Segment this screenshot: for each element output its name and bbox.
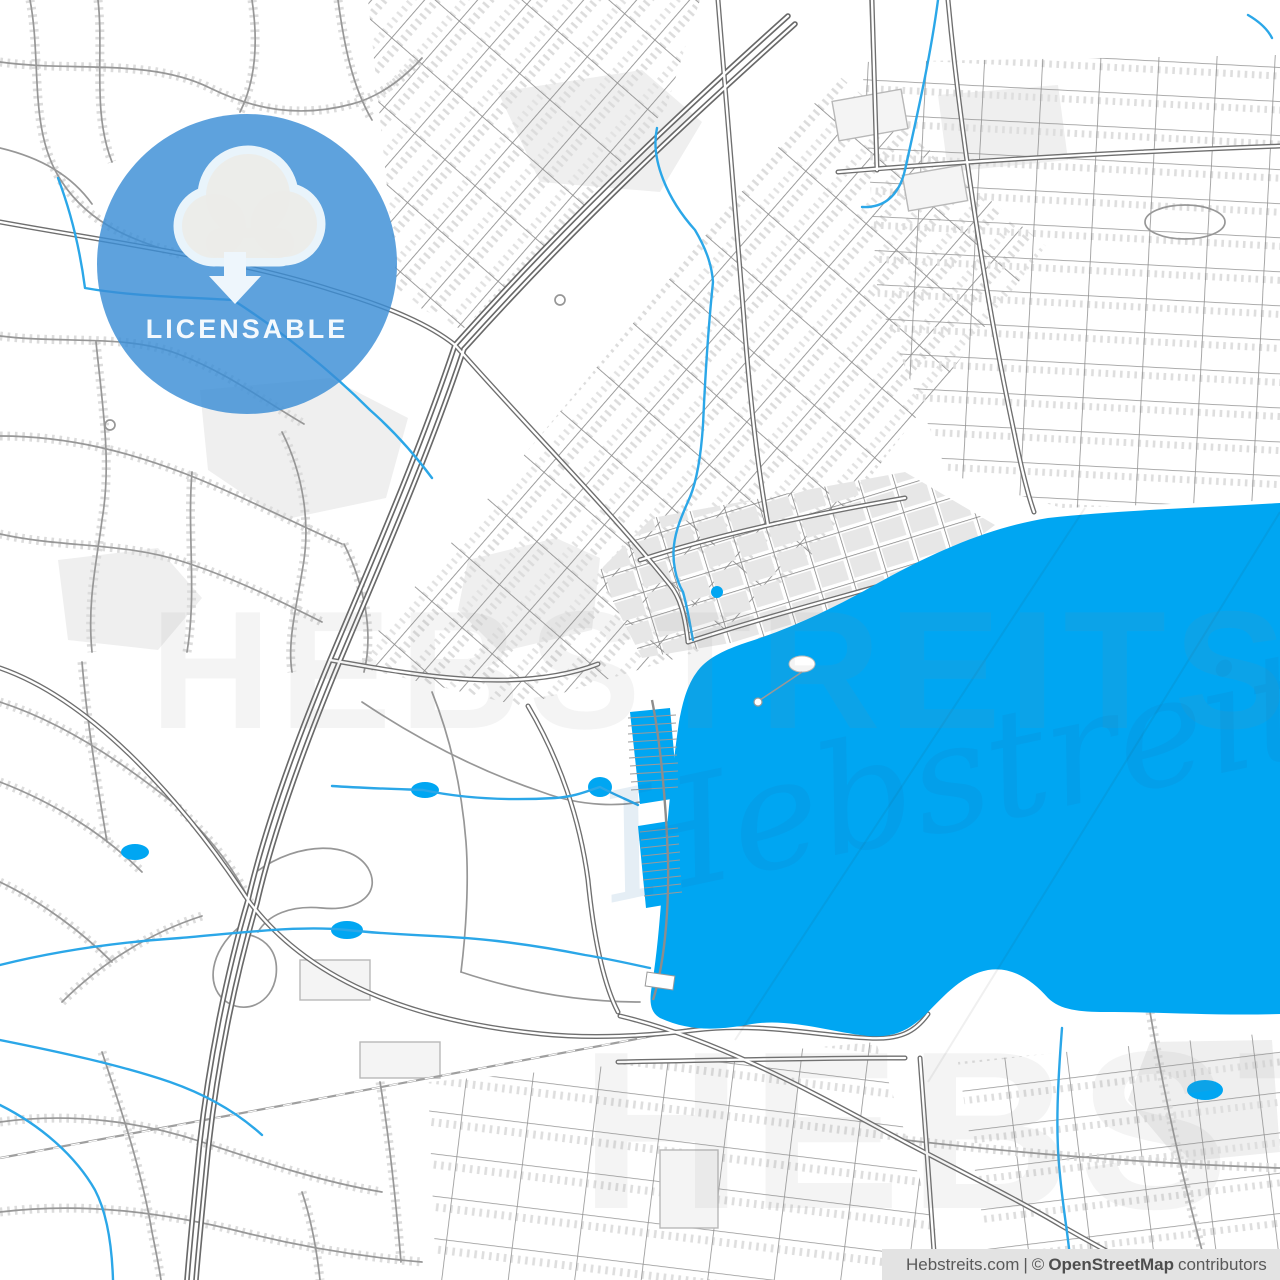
badge-label: LICENSABLE xyxy=(146,314,349,344)
watermark-text-bottom: HEBSTREITS xyxy=(580,1004,1280,1256)
map-poster-preview: HEBSTREITS HEBSTREITS Hebstreits LICENSA… xyxy=(0,0,1280,1280)
attribution-suffix: contributors xyxy=(1178,1255,1267,1274)
attribution-provider[interactable]: OpenStreetMap xyxy=(1048,1255,1174,1274)
city-map: HEBSTREITS HEBSTREITS Hebstreits LICENSA… xyxy=(0,0,1280,1280)
attribution-divider: | xyxy=(1023,1255,1027,1274)
copyright-symbol: © xyxy=(1032,1255,1045,1274)
licensable-badge[interactable]: LICENSABLE xyxy=(97,114,397,414)
attribution-bar: Hebstreits.com|©OpenStreetMapcontributor… xyxy=(882,1249,1280,1280)
attribution-source[interactable]: Hebstreits.com xyxy=(906,1255,1019,1274)
